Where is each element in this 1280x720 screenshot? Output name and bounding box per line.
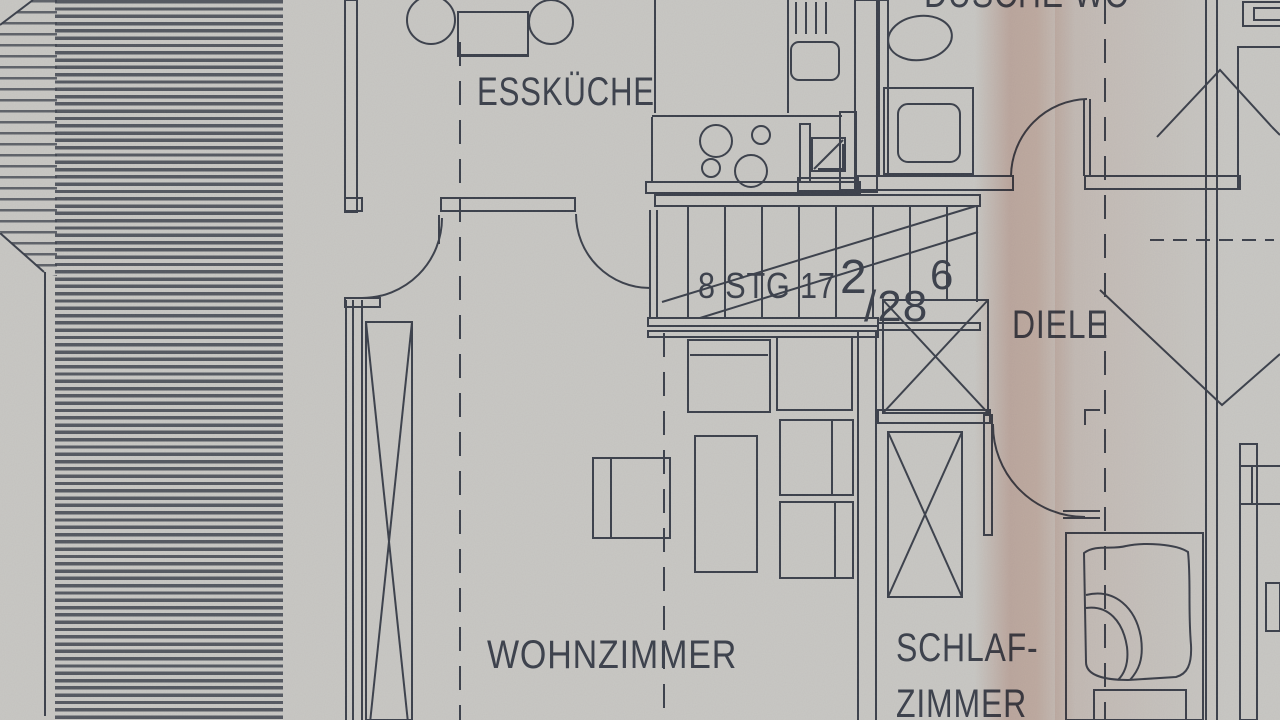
kitchen-fixtures — [652, 0, 858, 191]
chair — [407, 0, 455, 44]
label-esskueche: ESSKÜCHE — [477, 69, 655, 114]
svg-text:/28: /28 — [864, 282, 928, 331]
chair — [529, 0, 573, 44]
label-diele: DIELE — [1012, 302, 1108, 347]
radiator — [1243, 2, 1280, 26]
stove-burner — [752, 126, 770, 144]
dining-table — [458, 12, 528, 56]
stove-burner — [700, 125, 732, 157]
svg-text:8 STG 17: 8 STG 17 — [698, 267, 836, 307]
table — [695, 436, 757, 572]
svg-text:6: 6 — [930, 251, 954, 298]
label-wohnzimmer: WOHNZIMMER — [487, 631, 737, 676]
floorplan-svg: ESSKÜCHE WOHNZIMMER SCHLAF- ZIMMER DIELE… — [0, 0, 1280, 720]
label-schlafzimmer-1: SCHLAF- — [896, 625, 1038, 670]
roof-slope-lines — [1100, 70, 1280, 405]
shelf — [780, 502, 853, 578]
shelf — [777, 337, 852, 410]
label-schlafzimmer-2: ZIMMER — [896, 681, 1027, 720]
dining-set — [407, 0, 573, 56]
sofa — [688, 340, 770, 412]
living-room-furniture — [593, 337, 853, 578]
bed — [1066, 533, 1203, 720]
right-room-fixtures — [1240, 2, 1280, 631]
shelf — [780, 420, 853, 495]
blanket-fold — [1086, 594, 1142, 680]
fixture — [1240, 466, 1280, 504]
stove-burner — [702, 159, 720, 177]
room-labels: ESSKÜCHE WOHNZIMMER SCHLAF- ZIMMER DIELE… — [477, 0, 1129, 720]
washbasin — [898, 104, 960, 162]
toilet — [885, 12, 955, 64]
bathroom-fixtures — [884, 12, 973, 174]
kitchen-sink — [791, 42, 839, 80]
floorplan-page: ESSKÜCHE WOHNZIMMER SCHLAF- ZIMMER DIELE… — [0, 0, 1280, 720]
bed-foot — [1094, 690, 1186, 720]
door-arc-schlafzimmer — [993, 424, 1085, 517]
door-arc-wohnzimmer — [362, 218, 442, 298]
roof-hatch-edges — [0, 0, 45, 716]
armchair — [593, 458, 670, 538]
label-dusche-wc-cutoff: DUSCHE WC — [924, 0, 1129, 16]
bed-frame — [1066, 533, 1203, 720]
door-arc-esskueche — [576, 214, 650, 288]
door-arc-bad — [1011, 99, 1087, 176]
dark-fixture — [1266, 583, 1280, 631]
blanket — [1084, 544, 1191, 680]
